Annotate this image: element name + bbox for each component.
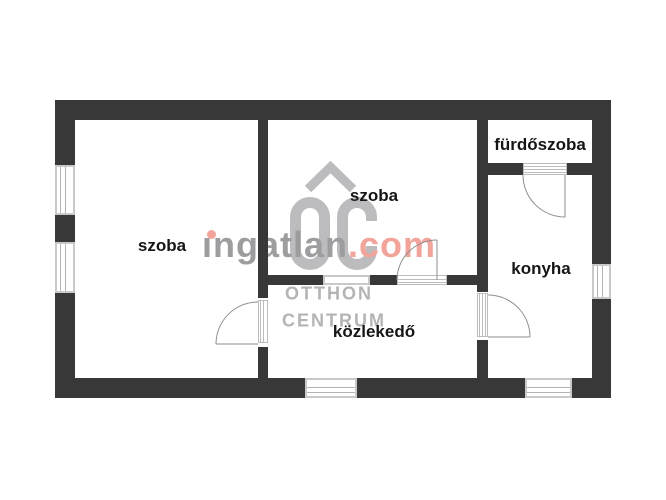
wall-segment xyxy=(477,340,488,378)
wall-segment xyxy=(357,378,525,398)
room-label-konyha: konyha xyxy=(511,259,571,279)
window-icon xyxy=(305,378,357,398)
window-icon xyxy=(55,242,75,293)
wall-segment xyxy=(55,215,75,242)
brand-main-text: ıngatlan xyxy=(202,224,348,265)
wall-segment xyxy=(55,378,305,398)
wall-segment xyxy=(258,120,268,298)
door-frame-icon xyxy=(397,275,447,285)
wall-segment xyxy=(567,163,592,175)
floorplan-canvas: OTTHON CENTRUM ıngatlan.com xyxy=(0,0,666,500)
wall-segment xyxy=(592,120,611,264)
wall-segment xyxy=(55,100,611,120)
window-icon xyxy=(525,378,572,398)
wall-segment xyxy=(488,163,523,175)
wall-segment xyxy=(477,120,488,292)
room-label-szoba-left: szoba xyxy=(138,236,186,256)
wall-segment xyxy=(55,120,75,165)
wall-segment xyxy=(268,275,323,285)
room-label-furdoszoba: fürdőszoba xyxy=(494,135,586,155)
wall-segment xyxy=(447,275,477,285)
wall-segment xyxy=(572,378,611,398)
watermark-brand: ıngatlan.com xyxy=(202,227,436,263)
wall-segment xyxy=(592,299,611,378)
window-icon xyxy=(592,264,611,299)
brand-tld-text: .com xyxy=(348,224,436,265)
room-label-kozlekedo: közlekedő xyxy=(333,322,415,342)
wall-segment xyxy=(55,293,75,378)
door-frame-icon xyxy=(258,300,268,343)
door-swing-icon xyxy=(216,302,258,344)
wall-segment xyxy=(258,347,268,378)
interior-window-icon xyxy=(323,275,370,285)
window-icon xyxy=(55,165,75,215)
logo-roof-icon xyxy=(308,167,353,189)
brand-i-dot-icon xyxy=(207,230,216,239)
door-frame-icon xyxy=(523,163,567,175)
door-swing-icon xyxy=(523,175,565,217)
watermark-otthon-text: OTTHON xyxy=(285,284,373,305)
room-label-szoba-middle: szoba xyxy=(350,186,398,206)
door-swing-icon xyxy=(488,295,530,337)
door-frame-icon xyxy=(477,293,488,337)
wall-segment xyxy=(370,275,397,285)
